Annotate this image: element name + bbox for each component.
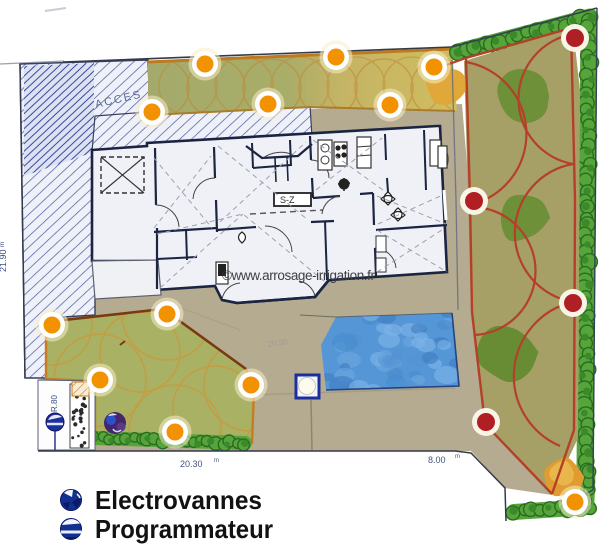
svg-text:m: m [455, 454, 460, 460]
svg-text:21.90 ᵐ: 21.90 ᵐ [0, 242, 8, 272]
svg-text:m: m [214, 458, 219, 464]
svg-text:R.80: R.80 [50, 395, 59, 412]
svg-text:8.00: 8.00 [428, 455, 446, 465]
svg-text:Programmateur: Programmateur [95, 514, 273, 544]
svg-text:20.30: 20.30 [180, 459, 203, 469]
svg-text:Electrovannes: Electrovannes [95, 485, 262, 515]
svg-text:©www.arrosage-irrigation.fr: ©www.arrosage-irrigation.fr [222, 268, 376, 283]
